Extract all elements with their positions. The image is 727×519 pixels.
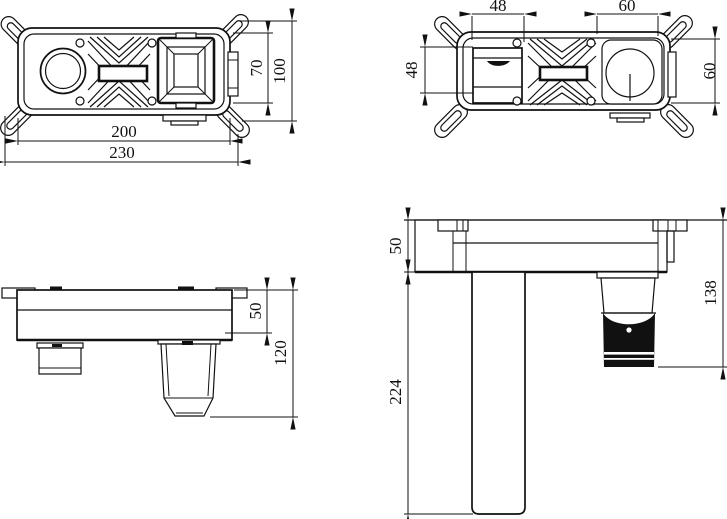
spout-housing [158, 340, 220, 416]
supply-pipe-hole [41, 49, 86, 94]
dim-label-handle-length: 224 [386, 379, 405, 405]
box-body [17, 290, 232, 340]
dim-label-spout-length: 138 [701, 280, 720, 306]
bottom-tab [163, 115, 206, 121]
view-side-faucet: 50 224 138 [386, 220, 727, 514]
valve-boss [37, 343, 83, 374]
dim-label-knob-width: 60 [619, 0, 636, 15]
view-back-rough-in-box: 48 60 48 60 [402, 0, 720, 140]
bottom-tab [610, 113, 650, 118]
dim-label-overall-width: 230 [109, 143, 135, 162]
center-slot [540, 67, 587, 80]
side-connector [668, 52, 676, 97]
view-side-rough-in-box: 50 120 [2, 287, 298, 418]
center-slot [99, 66, 147, 81]
dim-label-body-height: 70 [247, 60, 266, 77]
spout [597, 272, 658, 367]
cartridge-square [158, 33, 214, 108]
dim-label-square-height: 48 [402, 62, 421, 79]
handle-recess [602, 40, 662, 104]
dim-label-overall-height: 100 [270, 58, 289, 84]
dim-label-plate-depth: 50 [386, 238, 405, 255]
technical-drawing-canvas: 200 230 70 100 [0, 0, 727, 519]
spout-recess [473, 48, 522, 103]
bottom-tab [171, 121, 198, 125]
blueprint-page: 200 230 70 100 [0, 0, 727, 519]
dim-label-body-width: 200 [111, 122, 137, 141]
handle-lever [472, 272, 525, 514]
side-connector [228, 52, 238, 96]
aerator-dot [626, 327, 631, 332]
view-front-rough-in-box: 200 230 70 100 [0, 12, 297, 166]
dim-label-knob-height: 60 [700, 63, 719, 80]
dim-label-square-width: 48 [490, 0, 507, 15]
dim-label-box-depth: 50 [246, 303, 265, 320]
bottom-tab [617, 118, 644, 122]
wall-flange [667, 231, 674, 262]
dim-label-overall-depth: 120 [271, 340, 290, 366]
